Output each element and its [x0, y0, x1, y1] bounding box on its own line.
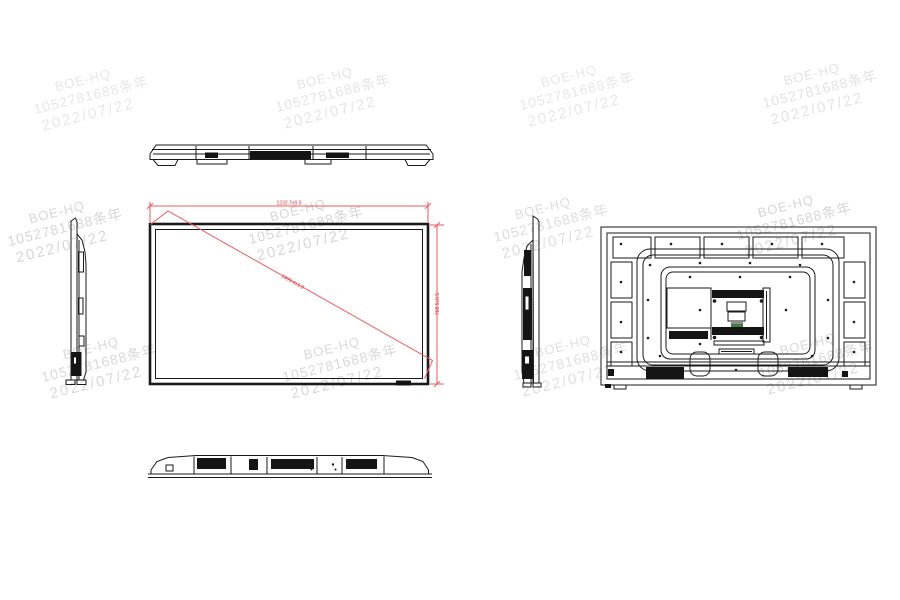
- dimension-diagonal-label: 1399.4±1.0: [280, 273, 305, 291]
- screw-holes: [620, 243, 856, 372]
- side-view-right: [522, 216, 541, 387]
- mount-bar-top: [712, 290, 764, 298]
- dimension-height-label: 708.5±0.5: [435, 293, 441, 315]
- dimension-width: 1232.7±0.5: [147, 201, 431, 223]
- dimension-diagonal: 1399.4±1.0: [151, 211, 433, 379]
- mount-bar-bottom: [712, 327, 764, 335]
- back-right-column: [844, 262, 865, 366]
- back-center-components: [667, 288, 770, 354]
- screen-area: [156, 230, 423, 379]
- top-vent-bar: [250, 151, 311, 159]
- right-side-bezel: [533, 216, 539, 383]
- speaker-left: [646, 367, 684, 379]
- bottom-speaker-left: [197, 458, 226, 469]
- pcb-strip: [731, 324, 743, 327]
- bottom-speaker-right: [346, 459, 377, 469]
- vesa-plate: [667, 288, 711, 328]
- back-left-column: [611, 262, 632, 366]
- back-view: [601, 227, 876, 389]
- back-cover-outline: [601, 227, 876, 385]
- top-view: [150, 145, 433, 166]
- side-view-left: [66, 218, 86, 385]
- drawing-sheet: BOE-HQ1052781688条年2022/07/22BOE-HQ105278…: [0, 0, 900, 600]
- bottom-vent-center: [271, 459, 314, 469]
- front-view: 1232.7±0.5 708.5±0.5 1399.4±1.0: [147, 201, 444, 387]
- dimension-width-label: 1232.7±0.5: [277, 201, 302, 207]
- screen-bezel: [150, 224, 428, 384]
- speaker-right: [788, 367, 828, 377]
- bottom-view: [148, 456, 432, 478]
- engineering-drawing: 1232.7±0.5 708.5±0.5 1399.4±1.0: [0, 0, 900, 600]
- logo-mark: [396, 381, 411, 386]
